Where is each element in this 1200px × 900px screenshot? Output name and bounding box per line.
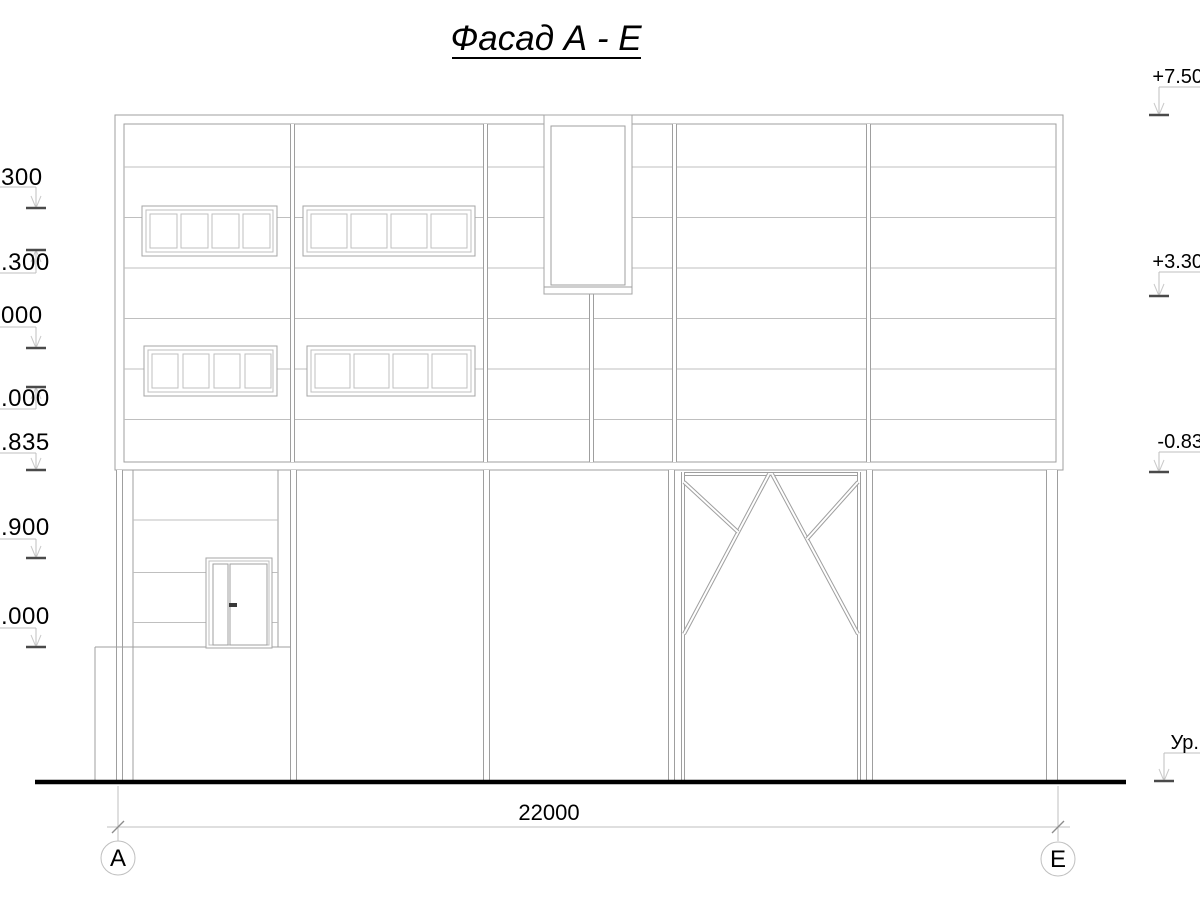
axis-marker-e: Е [1041,842,1075,876]
elevation-mark: -0.83 [1149,431,1200,472]
elevation-value: 000 [1,302,43,329]
entrance-door [206,558,272,648]
ribbon-window-3 [144,346,277,396]
elevation-value: .000 [1,385,50,412]
elevation-value: .000 [1,603,50,630]
dimension-value: 22000 [518,800,579,825]
elevation-mark: .900 [0,514,50,558]
elevation-mark: +7.50 [1149,66,1200,115]
elevation-value: .900 [1,514,50,541]
elevation-mark: .000 [0,603,50,647]
elevation-value: .300 [1,249,50,276]
brace-diagonal-core [684,474,769,634]
upper-block [115,115,1063,470]
elevation-value: 300 [1,164,43,191]
dimension-annotation: 22000 А Е [101,786,1075,876]
title-block: Фасад А - Е [450,19,642,58]
ribbon-window-4 [307,346,475,396]
brace-diagonal-core [807,482,858,539]
elevation-mark: .835 [0,429,50,470]
tower-outline [544,115,632,294]
elevation-value: Ур. [1171,732,1200,754]
elevation-mark: +3.30 [1149,251,1200,296]
ribbon-window-1 [142,206,277,256]
elevation-value: +3.30 [1152,251,1200,273]
axis-label: Е [1050,846,1066,873]
elevation-mark: Ур. [1154,732,1200,781]
elevation-value: -0.83 [1157,431,1200,453]
x-bracing [683,472,859,781]
elevation-marks-right: +7.50 +3.30 -0.83 Ур. [1149,66,1200,781]
elevation-mark: .300 [0,249,50,276]
elevation-value: .835 [1,429,50,456]
axis-label: А [110,845,126,872]
elevation-marks-left: 300 .300 000 .000 .835 [0,164,50,647]
drawing-title: Фасад А - Е [450,19,642,58]
elevation-value: +7.50 [1152,66,1200,88]
elevation-mark: 000 [0,302,46,348]
elevation-mark: .000 [0,385,50,412]
door-frame [206,558,272,648]
stair-tower [544,115,632,294]
facade-elevation-drawing: 22000 А Е 300 .300 [0,0,1200,900]
ribbon-window-2 [303,206,475,256]
axis-marker-a: А [101,841,135,875]
brace-diagonal-core [684,482,738,532]
elevation-mark: 300 [0,164,46,208]
drawing-sheet: 22000 А Е 300 .300 [0,0,1200,900]
door-handle [229,603,237,607]
